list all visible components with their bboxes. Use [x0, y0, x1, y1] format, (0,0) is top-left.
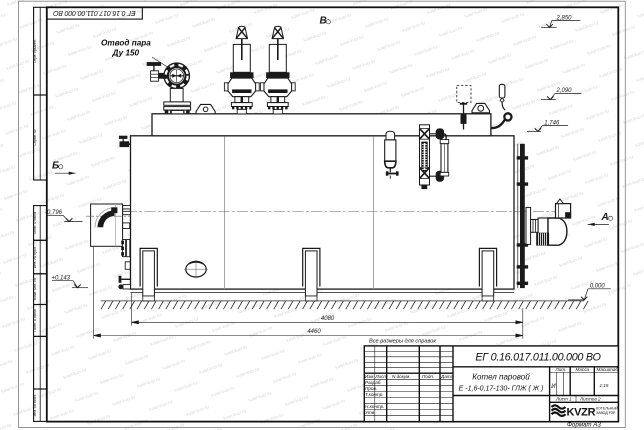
svg-text:И: И — [551, 384, 556, 390]
svg-text:4460: 4460 — [307, 329, 321, 335]
svg-text:ЕГ 0.16.017.011.00.000 ВО: ЕГ 0.16.017.011.00.000 ВО — [475, 352, 601, 364]
svg-text:Все размеры для справок: Все размеры для справок — [369, 338, 436, 344]
svg-text:ЕГ 0.16.017.011.00.000 ВО: ЕГ 0.16.017.011.00.000 ВО — [53, 9, 136, 16]
svg-text:0,000: 0,000 — [590, 284, 606, 290]
svg-text:Лит.: Лит. — [555, 367, 567, 372]
svg-text:Лист 1: Лист 1 — [555, 397, 572, 402]
svg-text:Инв. № дубл.: Инв. № дубл. — [33, 246, 37, 268]
svg-text:В: В — [320, 16, 327, 27]
svg-text:А: А — [601, 212, 609, 223]
svg-text:Масштаб: Масштаб — [597, 367, 619, 372]
svg-text:Инв. № подл.: Инв. № подл. — [33, 394, 37, 416]
svg-text:КОТЕЛЬНЫЙ: КОТЕЛЬНЫЙ — [596, 407, 618, 411]
svg-text:Лист: Лист — [374, 374, 387, 379]
svg-text:Взам. инв. №: Взам. инв. № — [33, 278, 37, 300]
svg-text:Пров.: Пров. — [365, 386, 377, 391]
svg-text:2,850: 2,850 — [556, 15, 573, 21]
svg-text:Справ. №: Справ. № — [33, 129, 37, 145]
svg-text:Листов 2: Листов 2 — [579, 397, 601, 402]
svg-text:Разраб.: Разраб. — [365, 380, 382, 385]
svg-text:ЗАВОД РЗР: ЗАВОД РЗР — [596, 411, 616, 415]
svg-text:1:15: 1:15 — [600, 383, 609, 388]
svg-text:Подп. и дата: Подп. и дата — [33, 309, 37, 332]
svg-text:Подп. и дата: Подп. и дата — [33, 212, 37, 235]
svg-text:Т.контр.: Т.контр. — [365, 392, 384, 397]
svg-text:Дата: Дата — [440, 374, 454, 379]
svg-text:N докум.: N докум. — [392, 374, 411, 379]
svg-text:4080: 4080 — [321, 316, 335, 322]
svg-text:Изм.: Изм. — [365, 374, 375, 379]
svg-text:Подп.: Подп. — [422, 374, 434, 379]
svg-text:Формат А3: Формат А3 — [567, 422, 601, 429]
svg-text:-0,796: -0,796 — [45, 210, 63, 216]
svg-text:Н.контр.: Н.контр. — [365, 404, 384, 409]
svg-text:KVZR: KVZR — [567, 406, 596, 418]
svg-text:Б: Б — [52, 161, 59, 172]
svg-text:Масса: Масса — [576, 367, 590, 372]
svg-text:Перв. примен.: Перв. примен. — [33, 39, 37, 63]
svg-text:Утв.: Утв. — [365, 410, 375, 415]
svg-text:Ду 150: Ду 150 — [112, 48, 140, 57]
svg-text:Отвод пара: Отвод пара — [101, 39, 151, 48]
svg-text:2,090: 2,090 — [556, 88, 573, 94]
svg-text:+0,143: +0,143 — [52, 276, 71, 282]
svg-text:Е -1,6-0,17-130- ГЛЖ ( Ж ): Е -1,6-0,17-130- ГЛЖ ( Ж ) — [459, 386, 544, 393]
svg-text:Котел паровой: Котел паровой — [472, 373, 530, 382]
svg-text:1,746: 1,746 — [544, 121, 560, 127]
